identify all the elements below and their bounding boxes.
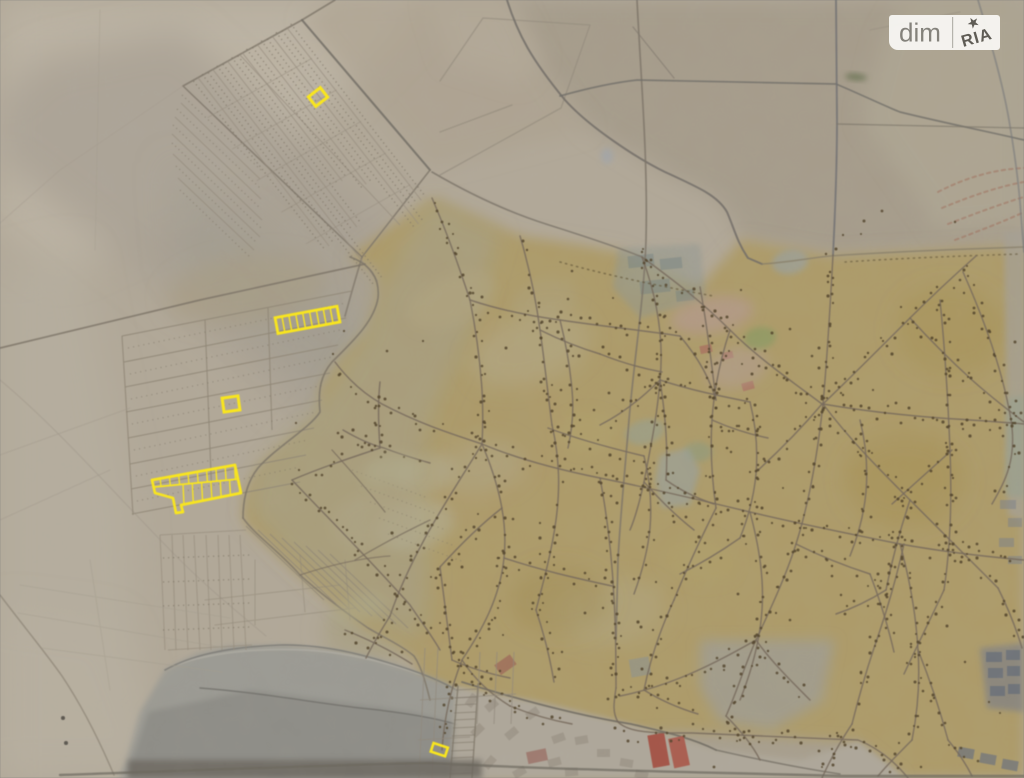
svg-text:dim: dim xyxy=(899,18,941,48)
svg-text:RIA: RIA xyxy=(959,25,994,50)
